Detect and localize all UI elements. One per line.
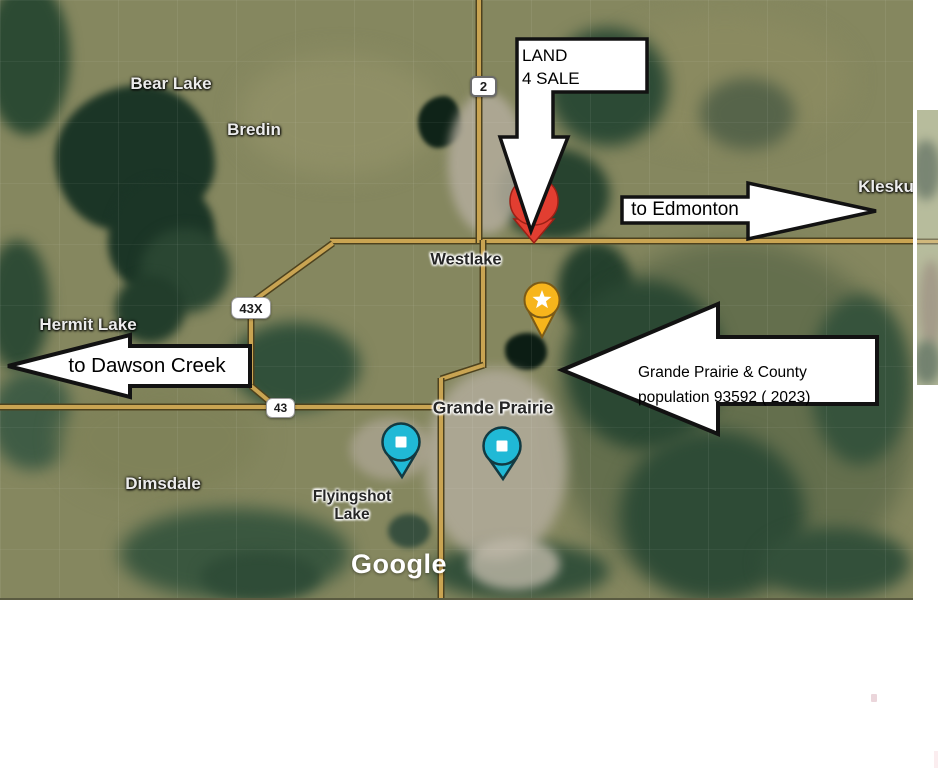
terrain-patch (700, 78, 795, 150)
urban-area (468, 538, 560, 590)
label-bear-lake: Bear Lake (130, 74, 211, 94)
to-edmonton-label: to Edmonton (622, 196, 748, 223)
county-line2: population 93592 ( 2023) (638, 385, 883, 410)
label-dimsdale: Dimsdale (125, 474, 201, 494)
label-grande-prairie: Grande Prairie (433, 398, 554, 419)
highway-east-west (330, 239, 913, 243)
satellite-map-image: Bear Lake Bredin Hermit Lake Westlake Gr… (0, 0, 913, 600)
terrain-patch (760, 528, 910, 598)
label-hermit-lake: Hermit Lake (39, 315, 136, 335)
pond (505, 333, 547, 370)
highway-43-badge: 43 (266, 398, 295, 418)
land-sale-line2: 4 SALE (522, 67, 647, 90)
highway-2-road (477, 0, 481, 243)
label-bredin: Bredin (227, 120, 281, 140)
county-population-label: Grande Prairie & County population 93592… (638, 360, 883, 410)
terrain-patch (0, 0, 70, 135)
land-sale-line1: LAND (522, 44, 647, 67)
strip-wash (917, 110, 938, 385)
highway-2-badge: 2 (470, 76, 497, 97)
county-line1: Grande Prairie & County (638, 360, 883, 385)
pink-artifact (871, 694, 877, 702)
highway-43x-road (251, 242, 334, 304)
annotated-map-screenshot: { "map": { "provider_logo": "Google", "l… (0, 0, 938, 768)
pink-artifact (934, 751, 938, 768)
google-logo: Google (351, 549, 447, 580)
label-flyingshot-line1: Flyingshot (313, 488, 391, 506)
label-kleskun: Klesku (858, 177, 913, 197)
pond (388, 514, 430, 548)
urban-area (448, 92, 526, 234)
map-edge-strip (917, 110, 938, 385)
urban-area (350, 418, 432, 480)
terrain-patch (240, 55, 440, 175)
star-pin (525, 283, 560, 338)
terrain-patch (200, 552, 320, 600)
label-westlake: Westlake (430, 251, 501, 270)
to-dawson-creek-label: to Dawson Creek (42, 349, 252, 383)
label-flyingshot-lake: Flyingshot Lake (313, 488, 391, 524)
highway-43x-badge: 43X (231, 297, 271, 319)
highway-43-road (0, 405, 441, 409)
land-sale-callout-text: LAND 4 SALE (519, 44, 647, 90)
label-flyingshot-line2: Lake (313, 506, 391, 524)
